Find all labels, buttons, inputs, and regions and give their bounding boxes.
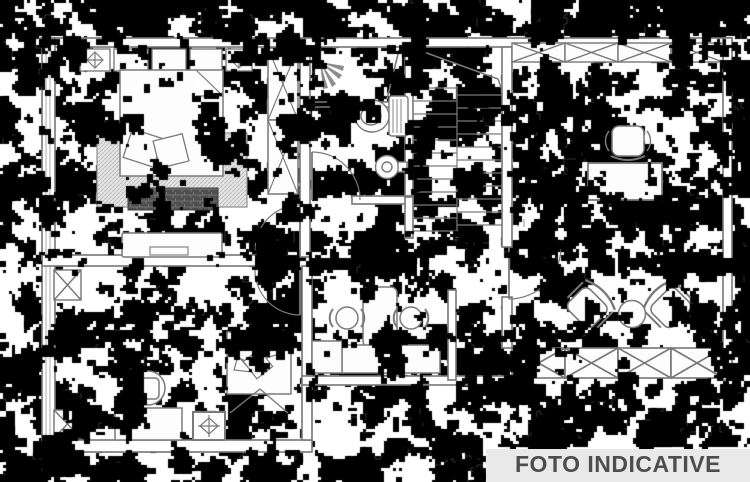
watermark-banner: FOTO INDICATIVE bbox=[486, 449, 750, 482]
noise-texture-over bbox=[0, 0, 750, 482]
floorplan-photo: FOTO INDICATIVE bbox=[0, 0, 750, 482]
watermark-text: FOTO INDICATIVE bbox=[515, 451, 721, 478]
